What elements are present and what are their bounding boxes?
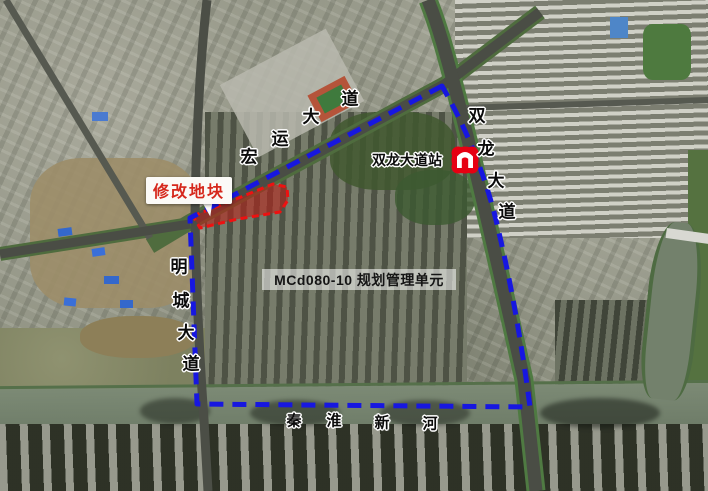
river-label-char-3: 新	[374, 416, 389, 431]
mingcheng-avenue-road	[195, 0, 208, 491]
mingcheng-road-label-char-3: 大	[178, 325, 195, 342]
river-label-char-4: 河	[422, 417, 437, 432]
shuanglong-road-label-char-3: 大	[488, 173, 505, 190]
shuanglong-road-label-char-4: 道	[499, 204, 516, 221]
shuanglong-road-label-char-2: 龙	[478, 141, 495, 158]
hongyun-road-label-char-4: 道	[342, 91, 359, 108]
river-label-char-2: 淮	[326, 414, 341, 429]
minor-road	[6, 0, 150, 238]
modified-plot-callout: 修改地块	[146, 177, 232, 204]
satellite-planning-map: 宏 运 大 道 双 龙 大 道 明 城 大 道 秦 淮 新 河 双龙大道站 MC…	[0, 0, 708, 491]
road-green-verge	[428, 0, 536, 491]
river-label-char-1: 秦	[286, 414, 301, 429]
hongyun-road-label-char-1: 宏	[241, 149, 258, 166]
mingcheng-road-label-char-2: 城	[173, 293, 190, 310]
mingcheng-road-label-char-4: 道	[183, 356, 200, 373]
metro-station-label: 双龙大道站	[372, 150, 442, 170]
hongyun-road-label-char-3: 大	[303, 109, 320, 126]
mingcheng-road-label-char-1: 明	[171, 259, 188, 276]
metro-station-icon	[452, 147, 479, 174]
map-annotation-layer	[0, 0, 708, 491]
shuanglong-road-label-char-1: 双	[469, 108, 486, 125]
hongyun-road-label-char-2: 运	[272, 131, 289, 148]
planning-unit-label: MCd080-10 规划管理单元	[262, 269, 456, 290]
minor-road	[462, 100, 708, 108]
